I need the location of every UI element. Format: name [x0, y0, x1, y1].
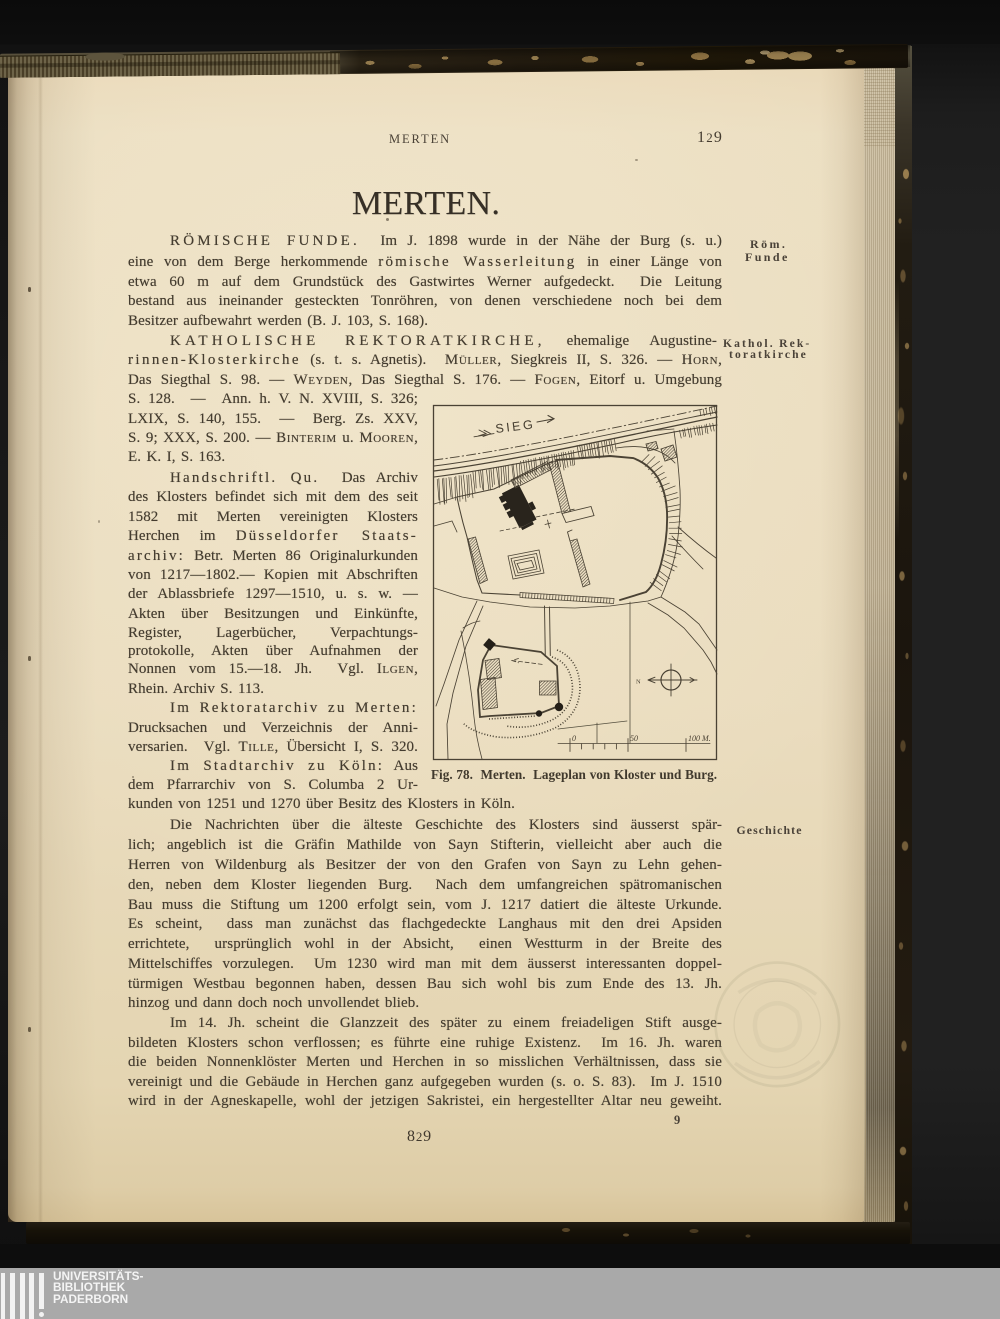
- svg-text:100 M.: 100 M.: [688, 734, 711, 743]
- svg-text:N: N: [636, 679, 641, 686]
- svg-text:SIEG: SIEG: [495, 417, 536, 436]
- svg-text:0: 0: [572, 734, 576, 743]
- svg-text:50: 50: [630, 734, 638, 743]
